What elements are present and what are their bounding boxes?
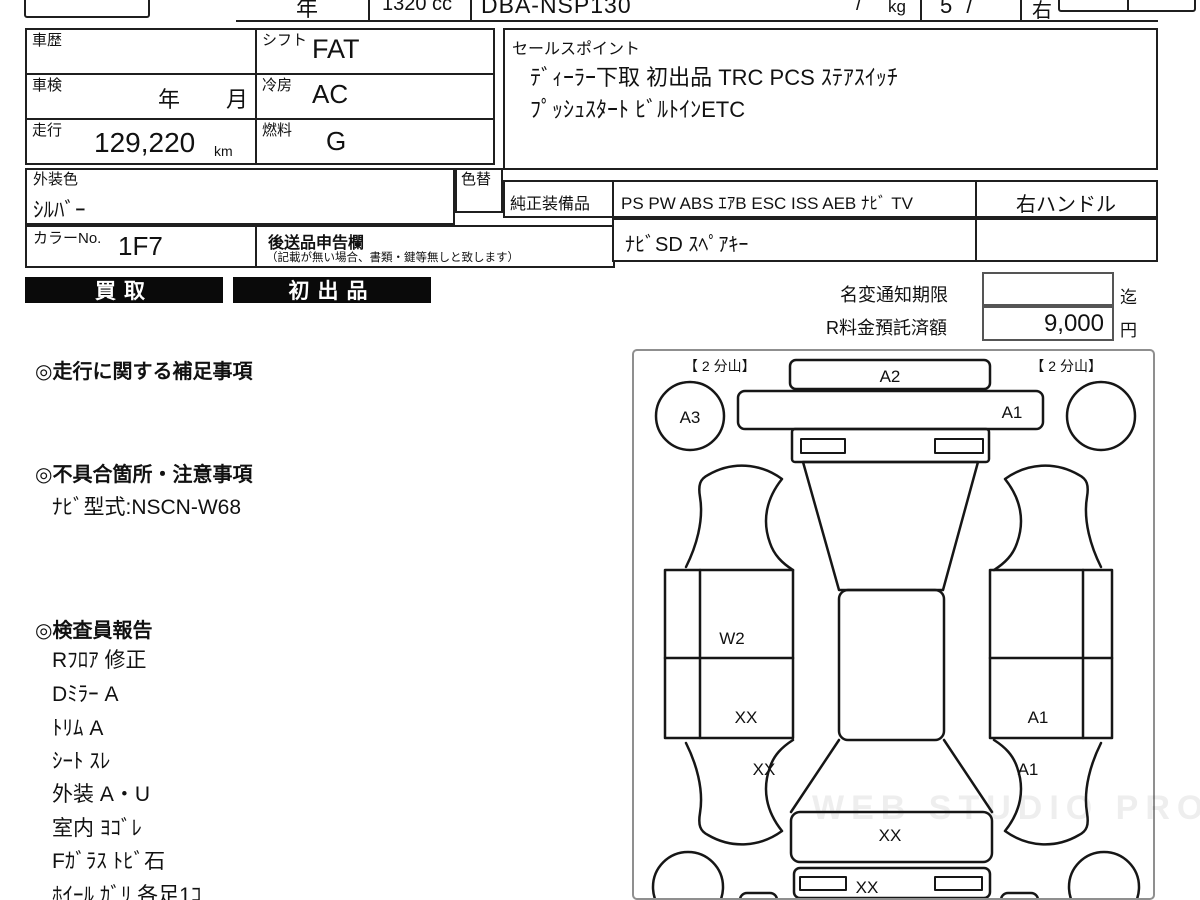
inspection-month: 月 bbox=[226, 82, 248, 114]
head-lamp-left-shape bbox=[800, 877, 846, 890]
divider bbox=[470, 0, 472, 20]
inspector-item: Rﾌﾛｱ 修正 bbox=[52, 650, 147, 671]
history-label: 車歴 bbox=[32, 33, 62, 48]
right-side-panel bbox=[990, 570, 1112, 738]
shift-value: FAT bbox=[312, 34, 360, 65]
rear-left-fender-shape bbox=[686, 466, 793, 570]
divider bbox=[1127, 0, 1129, 12]
head-lamp-right-shape bbox=[935, 877, 982, 890]
rear-panel-shape bbox=[792, 429, 989, 462]
left-mirror-shape bbox=[740, 893, 777, 898]
inspector-item: ｼｰﾄ ｽﾚ bbox=[52, 751, 110, 772]
auction-sheet: 年 1320 cc DBA-NSP130 / kg 5 / 右 車歴 シフト F… bbox=[0, 0, 1200, 900]
inspector-item: 室内 ﾖｺﾞﾚ bbox=[52, 818, 142, 839]
front-left-fender-shape bbox=[686, 740, 793, 844]
mileage-value: 129,220 bbox=[94, 127, 195, 159]
header-capacity: 5 / bbox=[940, 0, 976, 19]
mileage-label: 走行 bbox=[32, 123, 62, 138]
color-box bbox=[25, 168, 455, 225]
inspection-year: 年 bbox=[158, 82, 180, 114]
handle-value: 右ハンドル bbox=[1016, 188, 1116, 217]
roof-shape bbox=[839, 590, 944, 740]
inspector-title: ◎検査員報告 bbox=[35, 621, 152, 641]
late-items-note: （記載が無い場合、書類・鍵等無しと致します） bbox=[266, 249, 519, 265]
recycle-fee-label: R料金預託済額 bbox=[826, 314, 947, 340]
divider bbox=[920, 0, 922, 20]
fuel-value: G bbox=[326, 128, 346, 154]
color-value: ｼﾙﾊﾞｰ bbox=[33, 194, 86, 224]
divider bbox=[1020, 0, 1022, 20]
name-change-field bbox=[982, 272, 1114, 306]
sales-point-label: セールスポイント bbox=[512, 35, 640, 59]
tail-lamp-left-shape bbox=[801, 439, 845, 453]
divider bbox=[368, 0, 370, 20]
header-weight-value: / bbox=[856, 0, 862, 16]
left-side-panel bbox=[665, 570, 793, 738]
label-left-quarter: W2 bbox=[719, 629, 745, 648]
equipment-label: 純正装備品 bbox=[510, 190, 590, 214]
handle-empty-box bbox=[975, 218, 1158, 262]
car-damage-diagram: WEB STUDIO PRO bbox=[632, 349, 1155, 900]
equipment-extra: ﾅﾋﾞSD ｽﾍﾟｱｷｰ bbox=[625, 228, 748, 257]
fuel-label: 燃料 bbox=[262, 123, 292, 138]
first-listing-badge: 初出品 bbox=[233, 277, 431, 303]
label-trunk: A1 bbox=[1002, 403, 1023, 422]
name-change-label: 名変通知期限 bbox=[840, 281, 948, 307]
inspection-label: 車検 bbox=[32, 78, 62, 93]
label-rear-bumper: A2 bbox=[880, 367, 901, 386]
inspector-item: ﾎｲｰﾙ ｶﾞﾘ 各足1ｺ bbox=[52, 885, 201, 900]
shift-label: シフト bbox=[262, 33, 307, 48]
aircon-label: 冷房 bbox=[262, 78, 292, 93]
label-left-door: XX bbox=[735, 708, 758, 727]
recycle-fee-field: 9,000 bbox=[982, 306, 1114, 341]
tail-lamp-right-shape bbox=[935, 439, 983, 453]
color-no-value: 1F7 bbox=[118, 231, 163, 262]
name-change-suffix: 迄 bbox=[1120, 283, 1137, 308]
kaitori-badge: 買取 bbox=[25, 277, 223, 303]
header-displacement: 1320 cc bbox=[382, 0, 452, 16]
divider bbox=[612, 182, 614, 216]
tread-depth-right: 【 2 分山】 bbox=[1030, 358, 1102, 374]
mileage-notes-title: ◎走行に関する補足事項 bbox=[35, 362, 252, 382]
mileage-unit: km bbox=[214, 143, 233, 159]
equipment-items: PS PW ABS ｴｱB ESC ISS AEB ﾅﾋﾞ TV bbox=[621, 189, 913, 214]
header-bottom-rule bbox=[236, 20, 1158, 22]
label-left-front-fender: XX bbox=[753, 760, 776, 779]
inspector-item: Dﾐﾗｰ A bbox=[52, 684, 119, 705]
divider bbox=[27, 118, 493, 120]
trunk-shape bbox=[738, 391, 1043, 429]
inspector-item: Fｶﾞﾗｽ ﾄﾋﾞ石 bbox=[52, 851, 165, 872]
divider bbox=[27, 73, 493, 75]
label-right-front-fender: A1 bbox=[1018, 760, 1039, 779]
rear-glass-shape bbox=[803, 462, 978, 590]
color-label: 外装色 bbox=[33, 172, 78, 187]
inspector-item: ﾄﾘﾑ A bbox=[52, 718, 103, 739]
inspector-item: 外装 A・U bbox=[52, 784, 150, 805]
defects-line: ﾅﾋﾞ型式:NSCN-W68 bbox=[52, 491, 241, 521]
color-change-label: 色替 bbox=[461, 172, 491, 187]
header-model-code: DBA-NSP130 bbox=[481, 0, 632, 19]
divider bbox=[255, 227, 257, 266]
rear-right-fender-shape bbox=[994, 466, 1101, 570]
sales-point-line2: ﾌﾟｯｼｭｽﾀｰﾄ ﾋﾞﾙﾄｲﾝETC bbox=[530, 92, 745, 124]
right-mirror-shape bbox=[1001, 893, 1038, 898]
color-no-label: カラーNo. bbox=[33, 231, 101, 246]
sales-point-line1: ﾃﾞｨｰﾗｰ下取 初出品 TRC PCS ｽﾃｱｽｲｯﾁ bbox=[530, 60, 898, 92]
label-right-door: A1 bbox=[1028, 708, 1049, 727]
divider bbox=[255, 30, 257, 163]
watermark: WEB STUDIO PRO bbox=[812, 789, 1200, 828]
front-left-wheel-shape bbox=[653, 852, 723, 898]
rear-right-wheel-shape bbox=[1067, 382, 1135, 450]
recycle-fee-unit: 円 bbox=[1120, 316, 1137, 341]
front-bumper-shape bbox=[794, 868, 990, 898]
label-front-bumper: XX bbox=[856, 878, 879, 897]
defects-title: ◎不具合箇所・注意事項 bbox=[35, 465, 252, 485]
label-rear-left-wheel: A3 bbox=[680, 408, 701, 427]
front-right-wheel-shape bbox=[1069, 852, 1139, 898]
label-hood: XX bbox=[879, 826, 902, 845]
aircon-value: AC bbox=[312, 81, 348, 107]
header-cut-box-left bbox=[24, 0, 150, 18]
tread-depth-left: 【 2 分山】 bbox=[684, 358, 756, 374]
header-weight-unit: kg bbox=[888, 0, 906, 17]
